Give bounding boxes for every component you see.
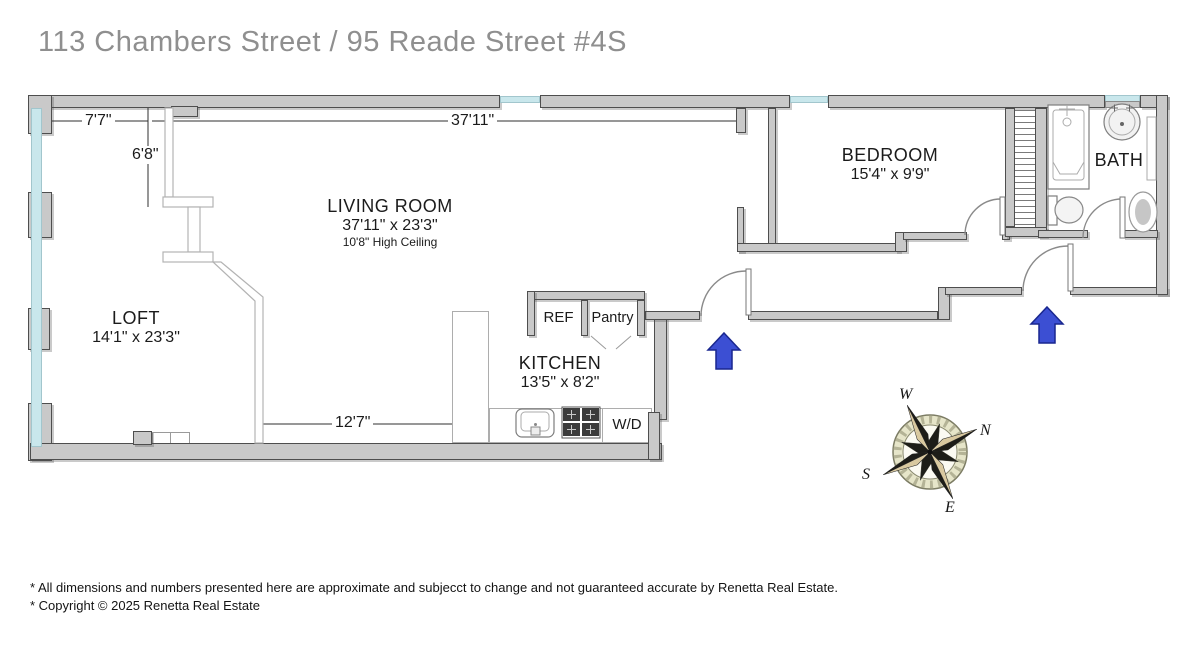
dim-label-7-7: 7'7" [82, 112, 115, 130]
living-room-ceiling-note: 10'8" High Ceiling [290, 235, 490, 249]
wall-bottom [30, 443, 662, 460]
wall-hall-bottom-2 [748, 311, 938, 320]
entry-arrow-2 [1031, 307, 1063, 343]
washer-dryer-label: W/D [604, 416, 650, 433]
second-entry-door-panel [1068, 244, 1073, 291]
wall-bath-bottom-1 [1038, 230, 1088, 238]
toilet-tank [1048, 196, 1057, 225]
compass-east: E [945, 499, 955, 517]
second-entry-door-arc [1023, 246, 1068, 291]
wall-top-3 [828, 95, 1105, 108]
wall-closet-left [1005, 108, 1015, 227]
closet-shelves [1015, 110, 1035, 227]
compass-rose [860, 382, 999, 521]
wall-closet-right [1035, 108, 1047, 230]
bath-sink [1104, 104, 1140, 140]
footer-copyright: * Copyright © 2025 Renetta Real Estate [30, 598, 260, 613]
wall-top-2 [540, 95, 790, 108]
dim-label-37-11: 37'11" [448, 112, 497, 130]
compass-west: W [899, 386, 912, 404]
wall-ref-left [527, 291, 535, 336]
living-room-name: LIVING ROOM [290, 196, 490, 217]
wall-ref-pantry-top [527, 291, 645, 300]
loft-dims: 14'1" x 23'3" [56, 329, 216, 347]
kitchen-name: KITCHEN [480, 353, 640, 374]
wall-bath-bottom-2 [1123, 230, 1158, 238]
window-bath-sill [1105, 101, 1140, 108]
shower-control [1063, 118, 1071, 126]
wall-loft-block [133, 431, 152, 445]
wall-outer-bottom-1 [945, 287, 1022, 295]
ref-label: REF [535, 309, 582, 326]
bath-name: BATH [1079, 150, 1159, 171]
column-flange-top [163, 197, 213, 207]
dim-label-6-8: 6'8" [129, 146, 162, 164]
wall-bedroom-bottom [903, 232, 967, 240]
pantry-bifold-left [591, 336, 606, 349]
living-room-dims: 37'11" x 23'3" [290, 217, 490, 235]
bedroom-dims: 15'4" x 9'9" [800, 166, 980, 184]
kitchen-dims: 13'5" x 8'2" [480, 374, 640, 392]
footer-disclaimer: * All dimensions and numbers presented h… [30, 580, 838, 595]
entry-door-arc [701, 271, 746, 316]
pantry-bifold-right [616, 336, 631, 349]
wall-pantry-right [637, 300, 645, 336]
bedroom-label: BEDROOM 15'4" x 9'9" [800, 145, 980, 184]
entry-arrow-1 [708, 333, 740, 369]
bath-sink-drain [1120, 122, 1124, 126]
bath-door-arc [1083, 199, 1122, 238]
window-top-2 [790, 96, 828, 103]
living-room-label: LIVING ROOM 37'11" x 23'3" 10'8" High Ce… [290, 196, 490, 249]
floorplan-canvas: 113 Chambers Street / 95 Reade Street #4… [0, 0, 1200, 650]
wall-right [1156, 95, 1168, 295]
compass-south: S [862, 466, 870, 484]
wall-hall-top [737, 243, 900, 252]
bedroom-door-arc [965, 199, 1001, 235]
bath-mat-inner [1135, 199, 1151, 225]
page-title: 113 Chambers Street / 95 Reade Street #4… [38, 26, 627, 59]
toilet-bowl [1055, 197, 1083, 223]
bath-sink-basin [1109, 109, 1135, 135]
wall-shaft-stub-1 [736, 108, 746, 133]
bath-label: BATH [1079, 150, 1159, 171]
wall-hall-bottom-1 [645, 311, 700, 320]
loft-rail [165, 108, 173, 197]
pantry-label: Pantry [587, 310, 638, 326]
bath-mat [1129, 192, 1157, 232]
wall-column-protrusion [171, 106, 198, 117]
window-top-1 [500, 96, 540, 103]
wall-top-1 [30, 95, 500, 108]
wall-bedroom-left [768, 108, 776, 250]
kitchen-label: KITCHEN 13'5" x 8'2" [480, 353, 640, 392]
column-web [188, 207, 200, 252]
loft-label: LOFT 14'1" x 23'3" [56, 308, 216, 347]
loft-name: LOFT [56, 308, 216, 329]
compass-north: N [980, 422, 991, 440]
wall-outer-bottom-2 [1070, 287, 1168, 295]
dim-label-12-7: 12'7" [332, 414, 373, 432]
loft-partial-wall [213, 262, 263, 443]
column-flange-bottom [163, 252, 213, 262]
window-left-strip [31, 108, 42, 447]
wall-kitchen-right-1 [654, 318, 667, 420]
tub [1048, 105, 1089, 189]
entry-door-panel [746, 269, 751, 315]
bedroom-name: BEDROOM [800, 145, 980, 166]
